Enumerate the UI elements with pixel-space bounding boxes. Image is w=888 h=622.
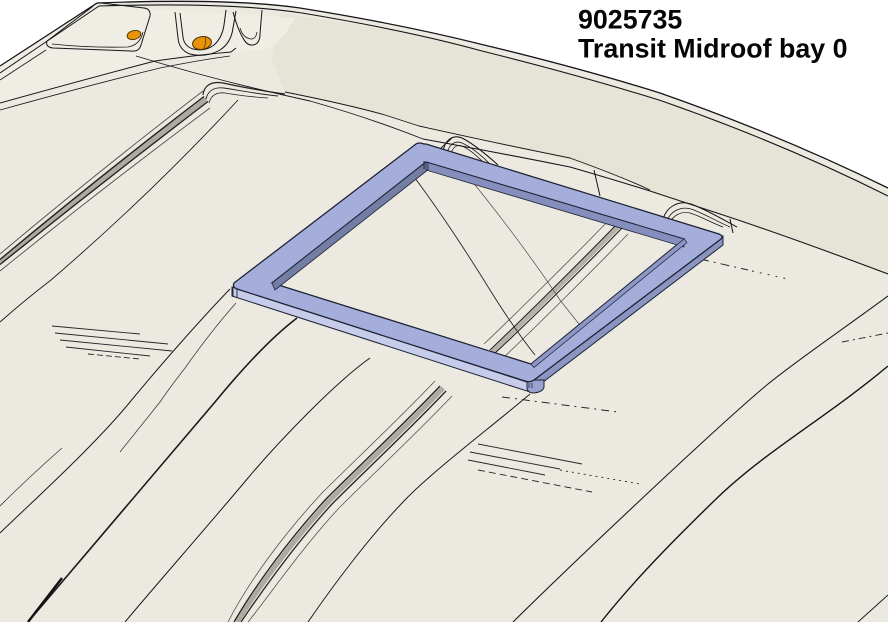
svg-text:9025735: 9025735	[578, 5, 682, 35]
svg-text:Transit Midroof bay 0: Transit Midroof bay 0	[578, 34, 848, 64]
